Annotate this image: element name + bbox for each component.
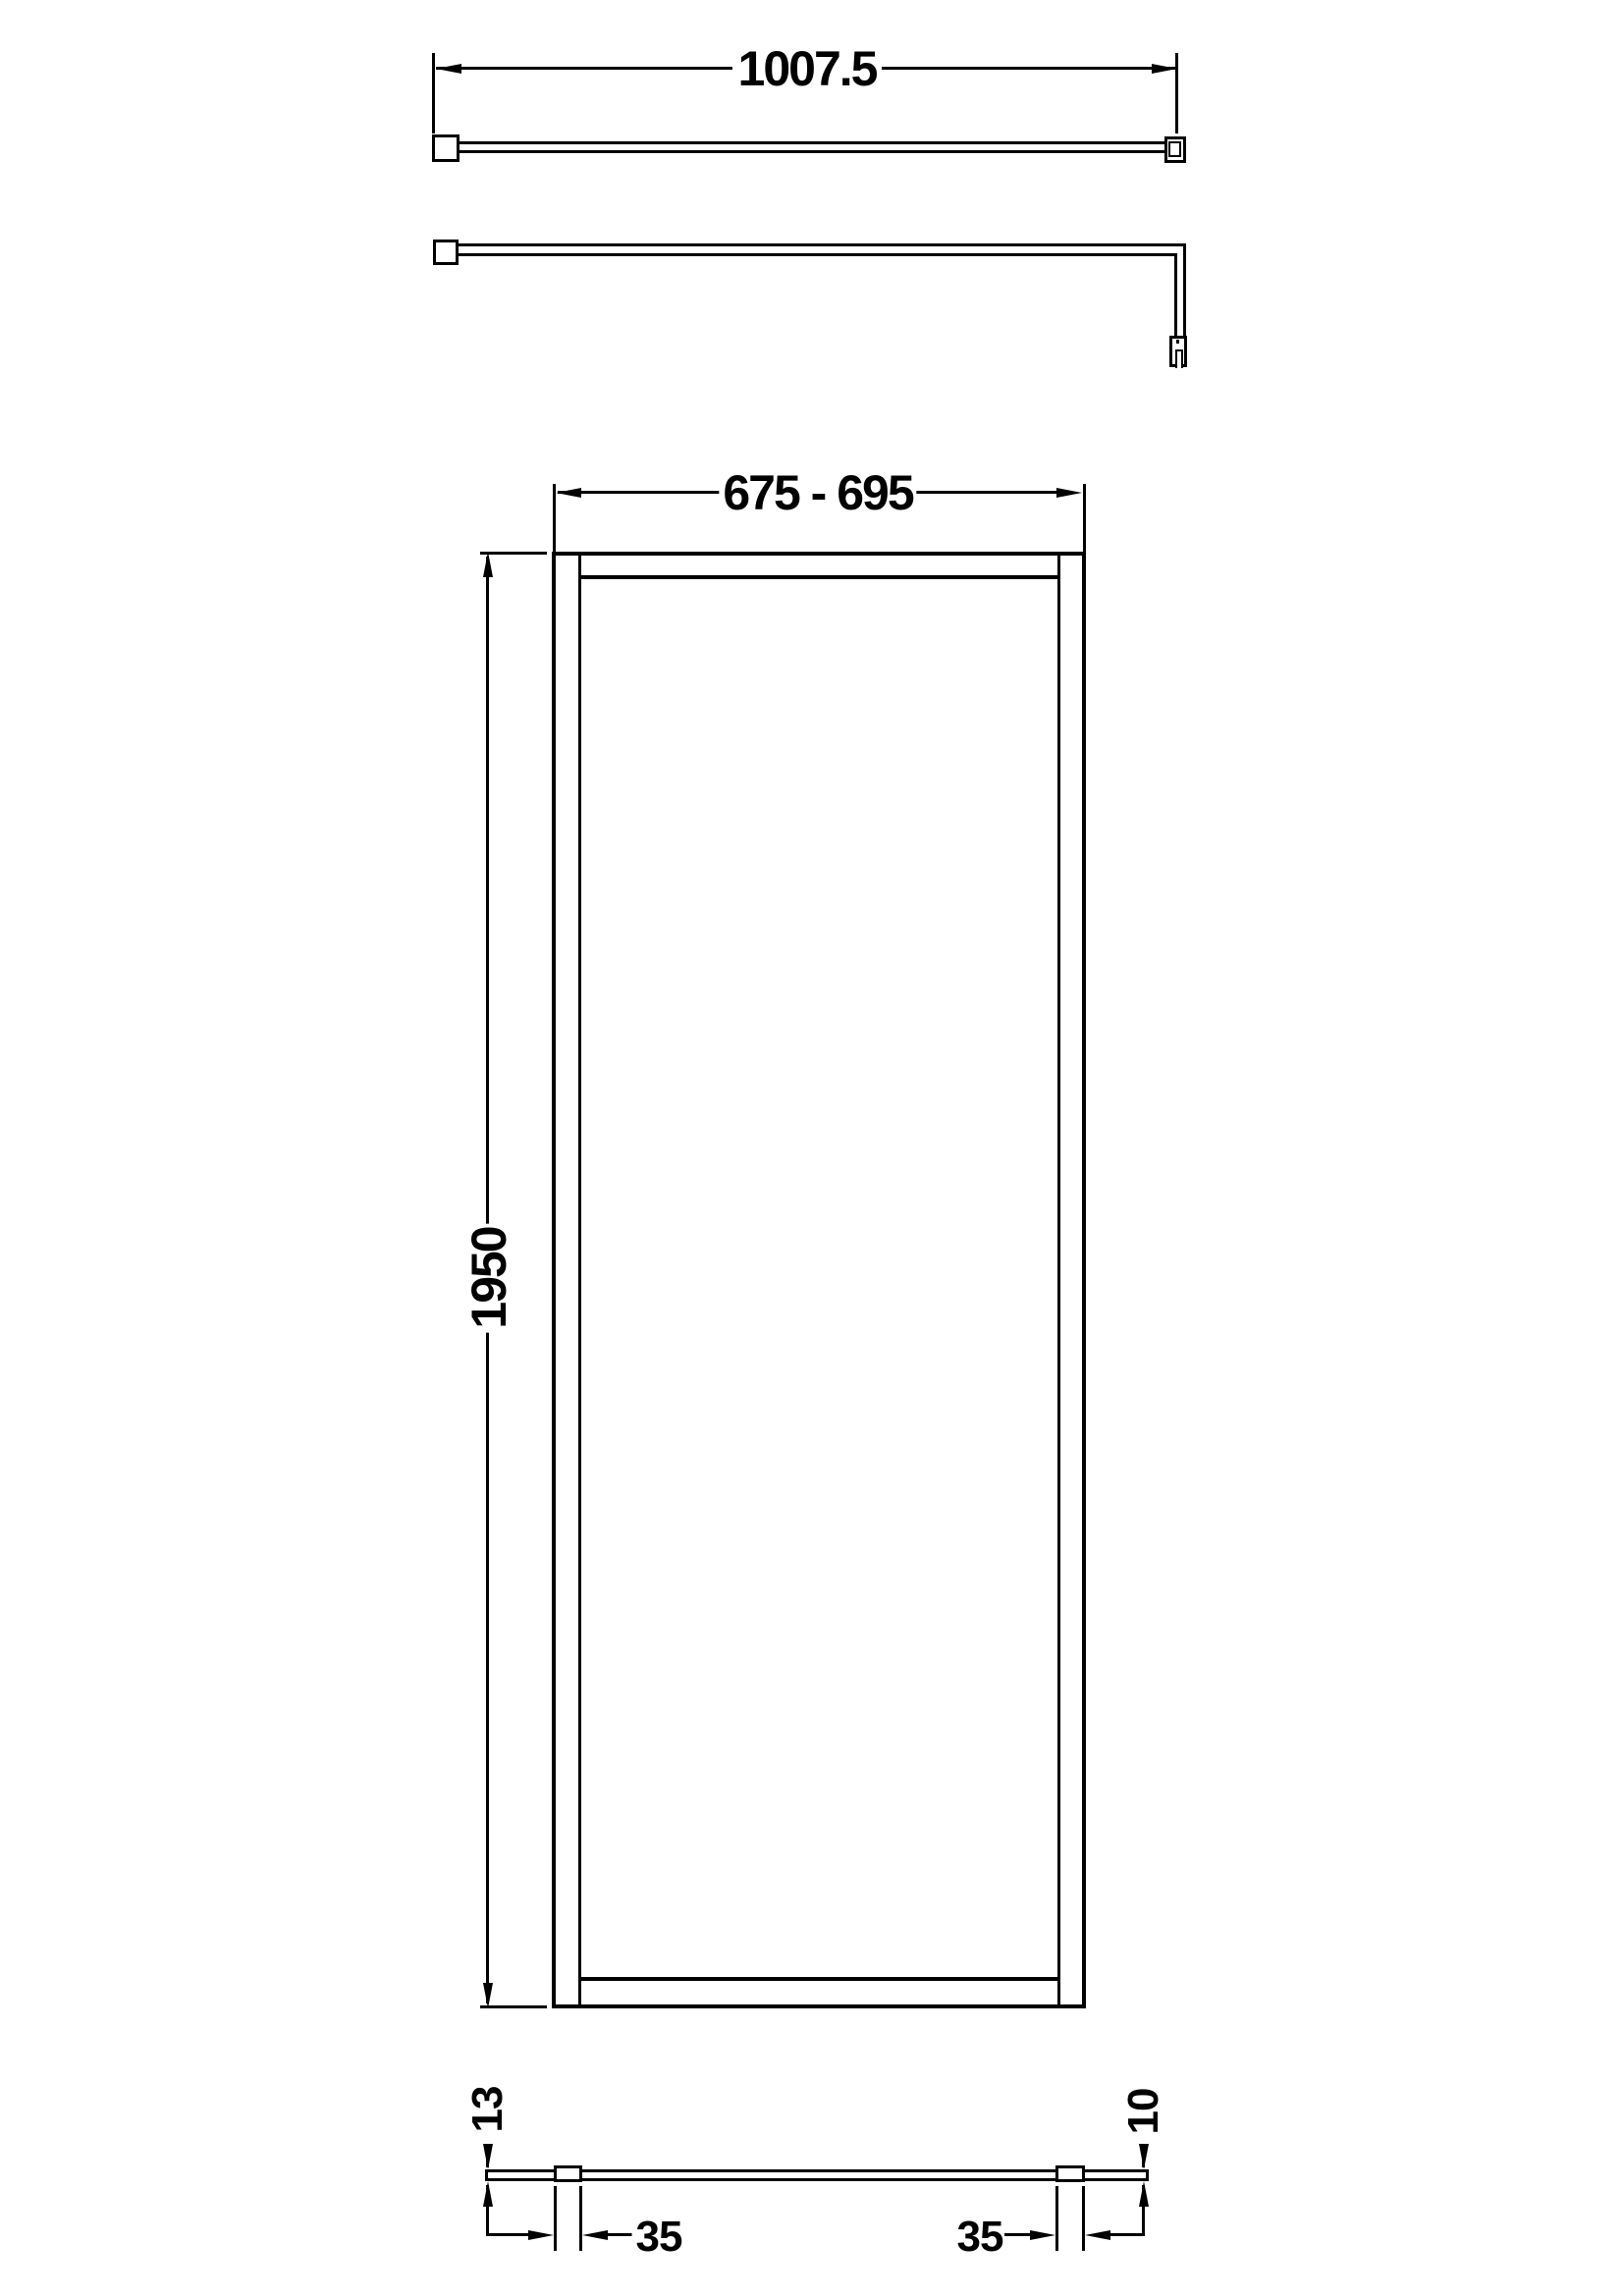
panel-bottom-edge bbox=[552, 2004, 1086, 2008]
arrowhead-down-icon bbox=[483, 1983, 493, 2008]
left-wall-profile-outer bbox=[552, 552, 556, 2008]
glass-section-left-cap bbox=[485, 2169, 488, 2181]
right-profile-outer bbox=[1082, 552, 1086, 2008]
dimension-line-segment bbox=[486, 1325, 489, 2003]
wall-clamp-fork-slot bbox=[1175, 349, 1183, 368]
panel-top-edge bbox=[552, 552, 1086, 556]
extension-line-right bbox=[1083, 484, 1086, 553]
left-profile-section bbox=[554, 2165, 582, 2182]
arrowhead-right-icon bbox=[1152, 64, 1177, 74]
dimension-line-segment bbox=[882, 67, 1176, 70]
extension-line bbox=[1082, 2186, 1085, 2251]
bar-drop-inner-line bbox=[1174, 253, 1177, 338]
technical-drawing-canvas: 1007.5 675 - 695 bbox=[0, 0, 1623, 2296]
dim-label-right-depth: 10 bbox=[1122, 2085, 1165, 2139]
arrowhead-left-icon bbox=[436, 64, 461, 74]
arrowhead-left-icon bbox=[556, 488, 581, 498]
arrowhead-down-icon bbox=[1139, 2144, 1149, 2169]
bar-inner-line bbox=[457, 253, 1177, 256]
arrowhead-up-icon bbox=[483, 552, 493, 577]
arrowhead-left-icon bbox=[582, 2230, 608, 2240]
arrowhead-up-icon bbox=[1139, 2181, 1149, 2207]
dim-label-panel-width: 675 - 695 bbox=[719, 468, 916, 517]
glass-section-bottom-line bbox=[485, 2178, 1149, 2181]
extension-line bbox=[1055, 2186, 1058, 2251]
arrowhead-down-icon bbox=[483, 2144, 493, 2169]
extension-line bbox=[579, 2186, 582, 2251]
extension-line-left bbox=[432, 53, 435, 133]
glass-clamp-block bbox=[433, 240, 459, 265]
bar-drop-outer-line bbox=[1183, 243, 1186, 338]
glass-section-top-line bbox=[485, 2169, 1149, 2172]
arrowhead-up-icon bbox=[483, 2181, 493, 2207]
bar-outer-line bbox=[457, 243, 1186, 246]
arrowhead-right-icon bbox=[1056, 488, 1082, 498]
arrowhead-right-icon bbox=[528, 2230, 554, 2240]
dim-label-right-profile-width: 35 bbox=[953, 2216, 1007, 2259]
dimension-line-segment bbox=[558, 491, 729, 494]
dimension-line-segment bbox=[488, 2233, 530, 2236]
dimension-line-segment bbox=[436, 67, 732, 70]
bottom-rail-inner-line bbox=[581, 1977, 1057, 1981]
right-profile-inner bbox=[1057, 552, 1060, 2008]
arrowhead-left-icon bbox=[1085, 2230, 1110, 2240]
dimension-line-segment bbox=[907, 491, 1058, 494]
clamp-screw-dot bbox=[1176, 340, 1179, 344]
dim-label-left-depth: 13 bbox=[466, 2083, 510, 2137]
dim-label-bar-length: 1007.5 bbox=[734, 44, 881, 93]
wall-bracket-socket-inner bbox=[1168, 141, 1181, 157]
right-profile-section bbox=[1055, 2165, 1085, 2182]
arrowhead-right-icon bbox=[1030, 2230, 1055, 2240]
glass-section-right-cap bbox=[1146, 2169, 1149, 2181]
dimension-line-segment bbox=[1004, 2233, 1031, 2236]
dimension-line-segment bbox=[608, 2233, 634, 2236]
support-bar-top-line bbox=[456, 141, 1166, 144]
glass-clamp-block bbox=[432, 134, 460, 162]
top-rail-inner-line bbox=[581, 575, 1057, 579]
support-bar-bottom-line bbox=[456, 150, 1166, 153]
dim-label-panel-height: 1950 bbox=[464, 1223, 514, 1332]
dimension-line-segment bbox=[1110, 2233, 1143, 2236]
extension-line bbox=[554, 2186, 557, 2251]
left-wall-profile-inner bbox=[578, 552, 581, 2008]
dim-label-left-profile-width: 35 bbox=[632, 2216, 686, 2259]
dimension-line-segment bbox=[486, 557, 489, 1232]
